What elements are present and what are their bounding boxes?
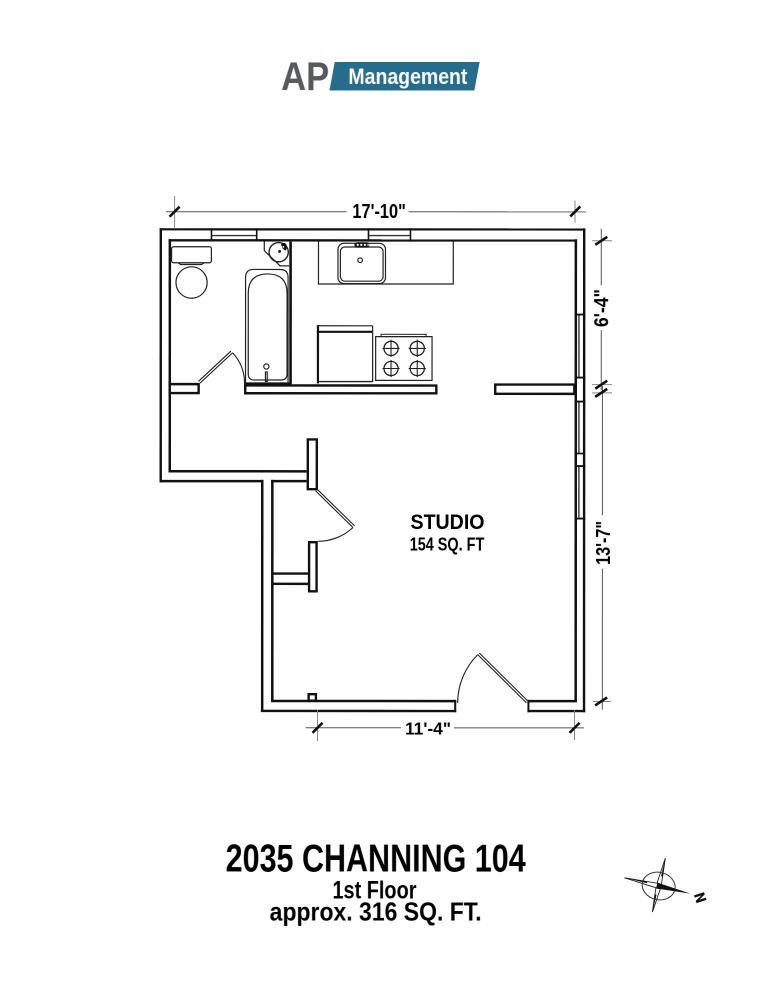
- svg-text:17'-10": 17'-10": [352, 201, 406, 223]
- svg-text:11'-4": 11'-4": [405, 718, 451, 738]
- svg-text:13'-7": 13'-7": [592, 521, 615, 565]
- svg-text:Management: Management: [348, 64, 467, 89]
- svg-text:154 SQ. FT: 154 SQ. FT: [410, 535, 485, 555]
- svg-text:STUDIO: STUDIO: [410, 509, 484, 534]
- svg-text:6'-4": 6'-4": [591, 289, 613, 327]
- svg-text:AP: AP: [281, 55, 329, 99]
- svg-text:2035 CHANNING 104: 2035 CHANNING 104: [226, 837, 526, 880]
- svg-text:approx. 316 SQ. FT.: approx. 316 SQ. FT.: [270, 896, 482, 926]
